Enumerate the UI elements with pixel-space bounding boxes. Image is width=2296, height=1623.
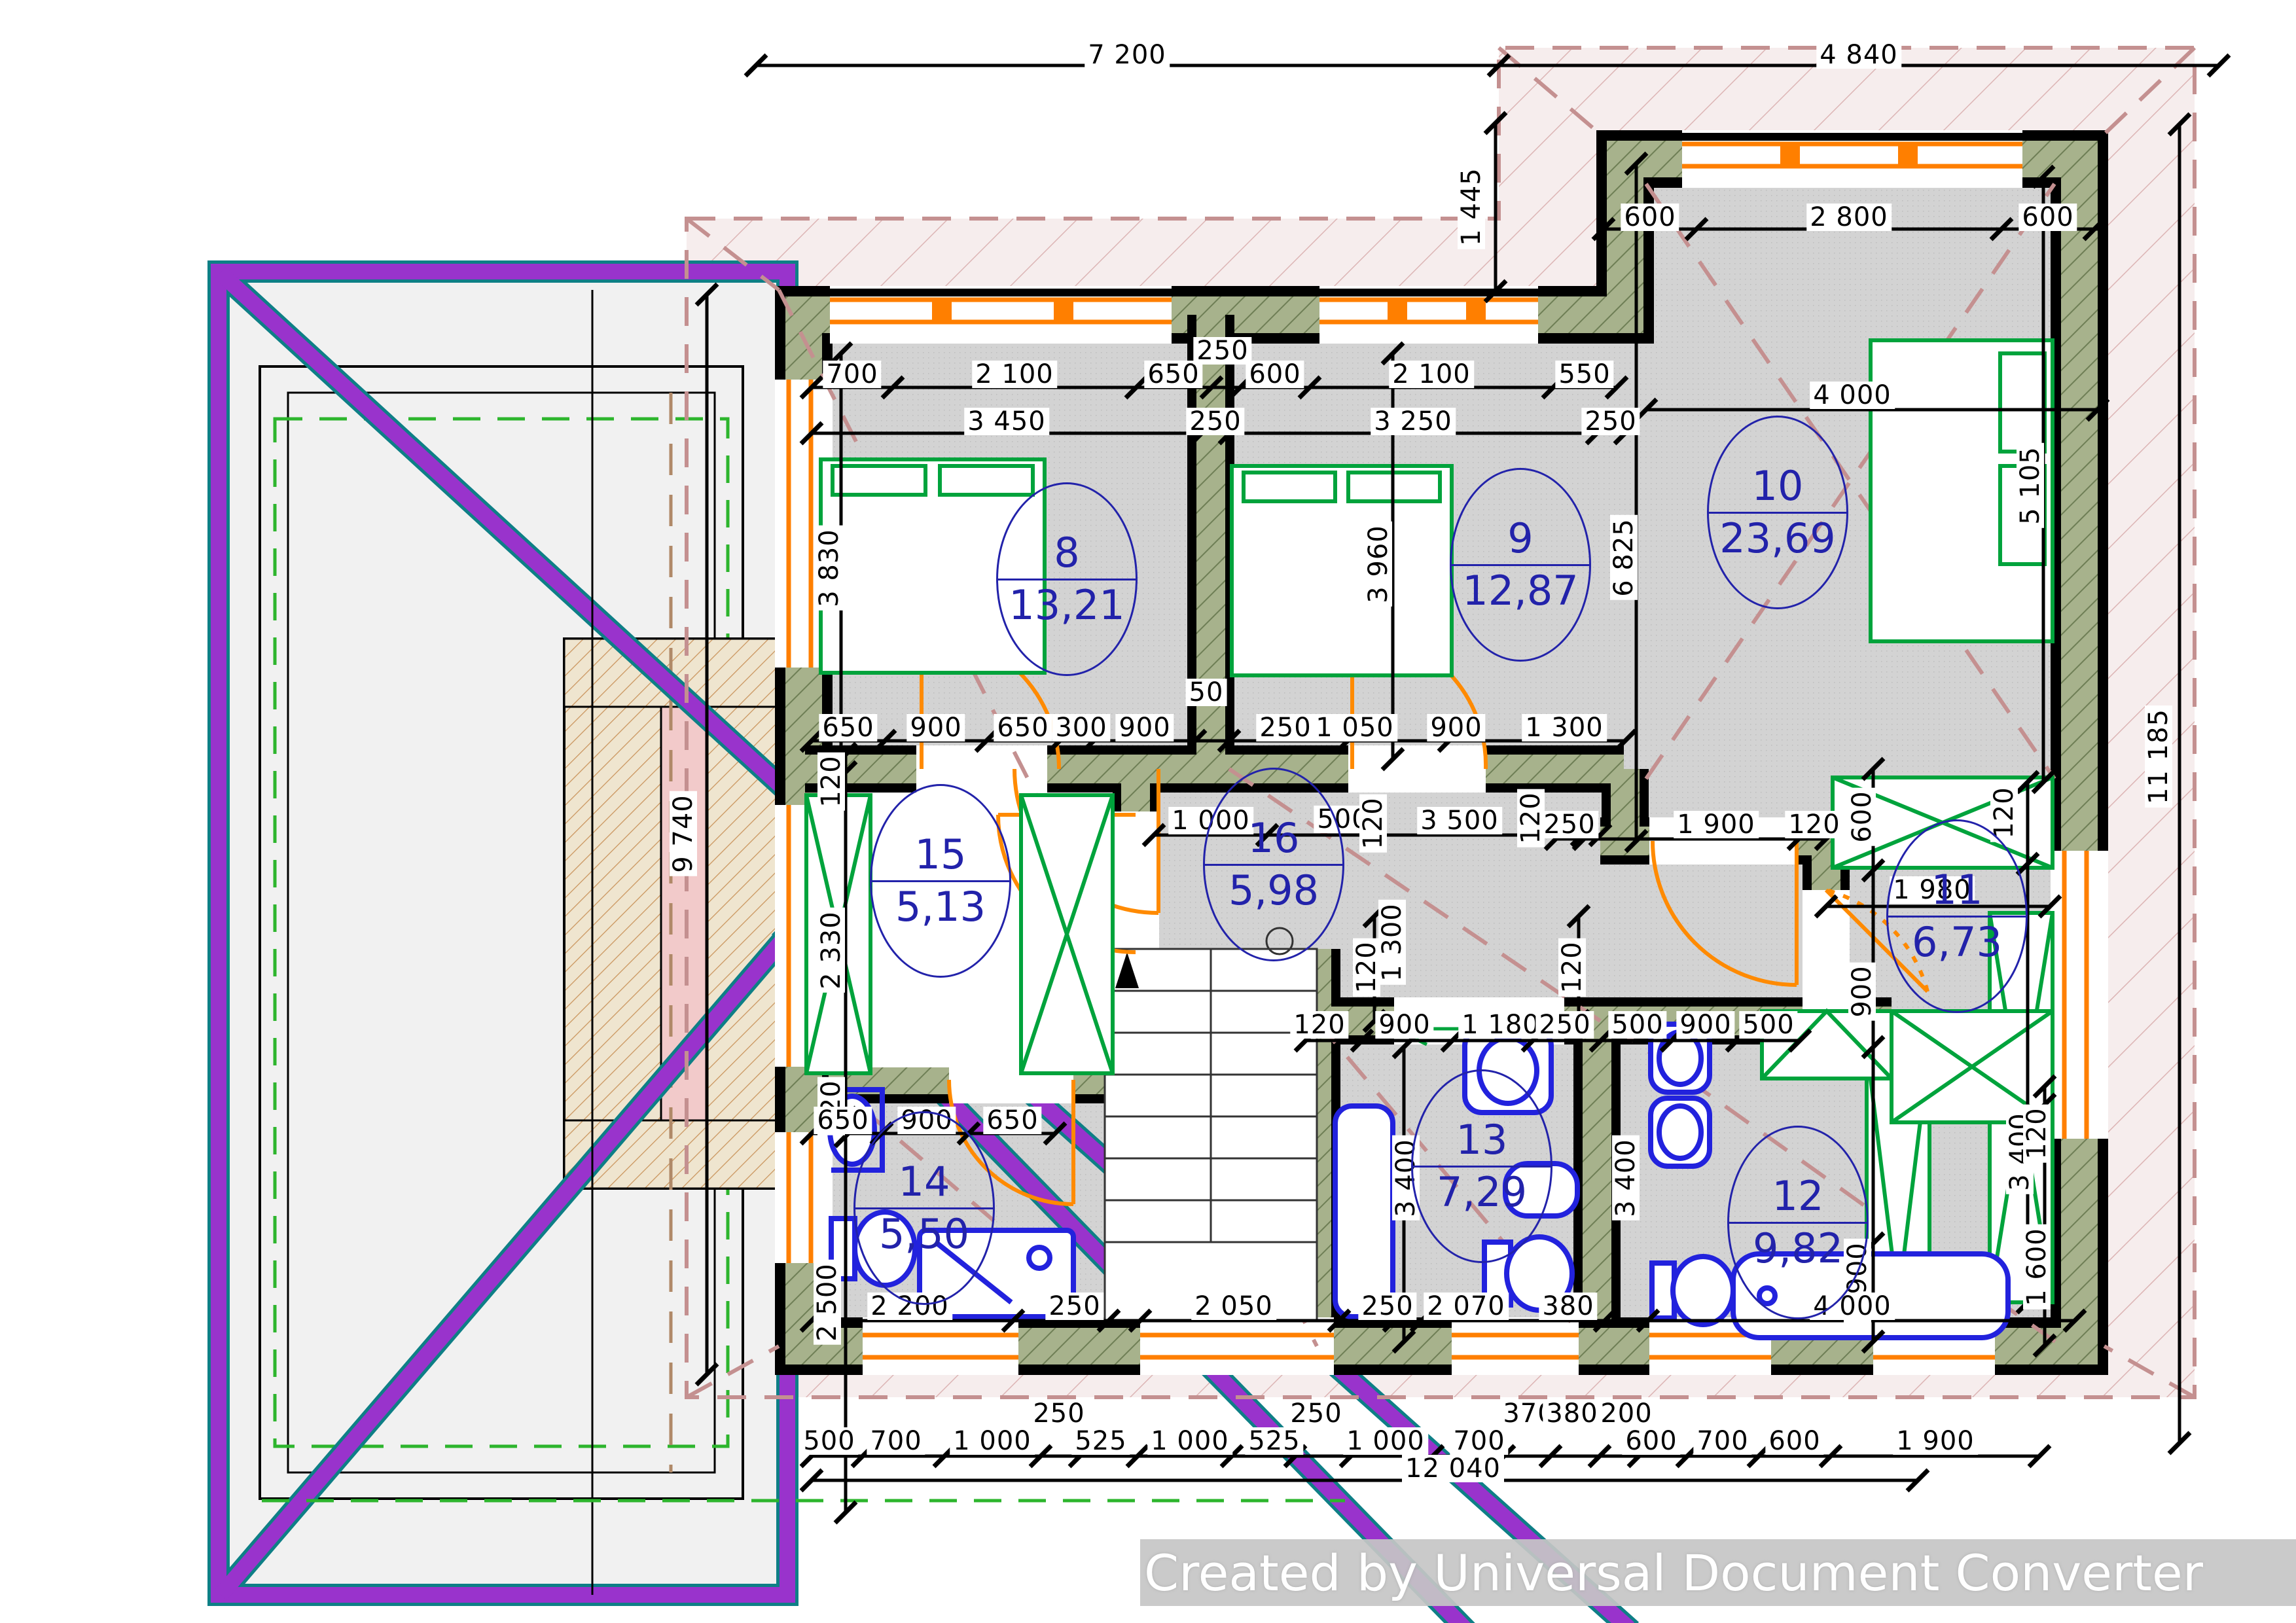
dim-label: 250 — [1287, 1400, 1345, 1427]
room-area: 5,50 — [879, 1212, 969, 1257]
watermark-bar: Created by Universal Document Converter — [1140, 1539, 2296, 1606]
dim-label: 380 — [1543, 1400, 1601, 1427]
dim-label: 3 450 — [964, 408, 1049, 435]
room-14-label: 145,50 — [853, 1111, 995, 1305]
room-area: 13,21 — [1009, 583, 1125, 628]
dim-label: 120 — [1353, 938, 1380, 996]
dim-label: 120 — [1359, 794, 1387, 852]
dim-label: 380 — [1539, 1293, 1597, 1320]
room-9-label: 912,87 — [1450, 468, 1591, 662]
dim-label: 250 — [1030, 1400, 1088, 1427]
dim-label: 200 — [1597, 1400, 1655, 1427]
dim-label: 4 000 — [1810, 382, 1895, 409]
dim-label: 600 — [1765, 1427, 1823, 1455]
room-number: 14 — [899, 1160, 950, 1204]
room-area: 23,69 — [1719, 516, 1836, 561]
dim-label: 900 — [1115, 714, 1174, 741]
dim-label: 600 — [1621, 204, 1679, 231]
floor-plan-page: 7 2004 8401 4456002 8006007002 100650250… — [0, 0, 2296, 1623]
dim-label: 12 040 — [1402, 1455, 1504, 1482]
dim-label: 600 — [1622, 1427, 1680, 1455]
dim-label: 3 400 — [1612, 1135, 1640, 1221]
room-8-label: 813,21 — [996, 482, 1138, 676]
dim-label: 1 180 — [1458, 1011, 1543, 1039]
room-area: 5,13 — [895, 885, 986, 929]
dim-label: 900 — [1375, 1011, 1433, 1039]
dim-label: 1 050 — [1312, 714, 1397, 741]
room-16-label: 165,98 — [1203, 768, 1344, 961]
dim-label: 5 105 — [2017, 443, 2044, 528]
room-10-label: 1023,69 — [1707, 416, 1848, 609]
dim-label: 1 900 — [1893, 1427, 1978, 1455]
room-number: 8 — [1054, 531, 1079, 575]
dim-label: 650 — [994, 714, 1052, 741]
dim-label: 600 — [2018, 204, 2077, 231]
dim-label: 650 — [814, 1107, 872, 1134]
dim-label: 3 250 — [1371, 408, 1456, 435]
dim-label: 250 — [1540, 811, 1598, 838]
dim-label: 700 — [1693, 1427, 1751, 1455]
dim-label: 250 — [1045, 1293, 1103, 1320]
room-number: 16 — [1248, 816, 1300, 861]
dim-label: 500 — [800, 1427, 858, 1455]
room-area: 5,98 — [1229, 868, 1319, 913]
dim-label: 250 — [1186, 408, 1244, 435]
dim-label: 1 300 — [1522, 714, 1607, 741]
dim-label: 3 500 — [1417, 807, 1502, 834]
dim-label: 700 — [1450, 1427, 1508, 1455]
dim-label: 900 — [1676, 1011, 1734, 1039]
room-area: 9,82 — [1753, 1226, 1843, 1271]
dim-label: 250 — [1358, 1293, 1416, 1320]
dim-label: 4 840 — [1816, 41, 1901, 69]
room-label-divider — [1413, 1166, 1551, 1168]
dim-label: 1 000 — [950, 1427, 1035, 1455]
dim-label: 2 100 — [972, 361, 1057, 388]
dim-label: 700 — [823, 361, 881, 388]
dim-label: 1 000 — [1147, 1427, 1232, 1455]
room-area: 7,29 — [1437, 1170, 1527, 1215]
room-label-divider — [1729, 1222, 1867, 1224]
dim-label: 1 300 — [1378, 900, 1406, 985]
watermark-text: Created by Universal Document Converter — [1140, 1544, 2203, 1602]
dim-label: 3 830 — [816, 526, 843, 611]
room-label-divider — [1888, 916, 2026, 918]
room-area: 12,87 — [1462, 569, 1579, 613]
room-12-label: 129,82 — [1727, 1126, 1869, 1319]
dim-label: 300 — [1052, 714, 1110, 741]
room-area: 6,73 — [1912, 920, 2002, 965]
dim-label: 2 050 — [1191, 1293, 1276, 1320]
room-number: 15 — [915, 832, 967, 877]
dim-label: 250 — [1535, 1011, 1594, 1039]
dim-label: 525 — [1071, 1427, 1130, 1455]
dim-label: 120 — [1990, 783, 2018, 842]
dim-label: 1 445 — [1458, 164, 1485, 249]
dim-label: 9 740 — [670, 791, 697, 876]
room-number: 11 — [1931, 868, 1983, 912]
room-11-label: 116,73 — [1886, 819, 2028, 1013]
room-label-divider — [1452, 564, 1589, 566]
dim-label: 2 330 — [817, 908, 845, 993]
dim-label: 500 — [1608, 1011, 1666, 1039]
dim-label: 2 500 — [814, 1260, 841, 1345]
dim-label: 120 — [2023, 1104, 2051, 1162]
dim-label: 3 960 — [1365, 522, 1392, 607]
room-label-divider — [855, 1207, 993, 1209]
room-number: 9 — [1507, 516, 1533, 561]
dim-label: 550 — [1555, 361, 1613, 388]
dim-label: 1 000 — [1343, 1427, 1428, 1455]
room-13-label: 137,29 — [1411, 1069, 1552, 1263]
floor-plan-drawing — [0, 0, 2296, 1623]
dim-label: 900 — [906, 714, 965, 741]
dim-label: 900 — [1427, 714, 1485, 741]
room-number: 12 — [1772, 1174, 1824, 1219]
dim-label: 250 — [1581, 408, 1640, 435]
dim-label: 2 070 — [1424, 1293, 1509, 1320]
dim-label: 2 800 — [1806, 204, 1892, 231]
dim-label: 120 — [817, 752, 845, 810]
stairs — [1105, 928, 1317, 1321]
room-number: 10 — [1752, 464, 1804, 508]
room-15-label: 155,13 — [870, 784, 1011, 978]
dim-label: 120 — [1290, 1011, 1348, 1039]
dim-label: 120 — [1785, 811, 1843, 838]
room-label-divider — [872, 880, 1009, 882]
dim-label: 650 — [819, 714, 877, 741]
dim-label: 600 — [1848, 787, 1876, 846]
room-label-divider — [998, 579, 1136, 580]
dim-label: 11 185 — [2145, 705, 2172, 808]
dim-label: 50 — [1186, 679, 1227, 706]
dim-label: 650 — [1144, 361, 1202, 388]
dim-label: 525 — [1245, 1427, 1303, 1455]
dim-label: 500 — [1739, 1011, 1797, 1039]
dim-label: 700 — [867, 1427, 925, 1455]
dim-label: 1 600 — [2023, 1224, 2051, 1310]
dim-label: 2 100 — [1389, 361, 1474, 388]
dim-label: 250 — [1256, 714, 1314, 741]
room-number: 13 — [1456, 1118, 1508, 1162]
dim-label: 1 900 — [1674, 811, 1759, 838]
dim-label: 250 — [1193, 337, 1251, 365]
dim-label: 120 — [1558, 938, 1586, 996]
dim-label: 650 — [983, 1107, 1041, 1134]
dim-label: 600 — [1246, 361, 1304, 388]
dim-label: 7 200 — [1085, 41, 1170, 69]
dim-label: 900 — [1848, 962, 1876, 1020]
dim-label: 6 825 — [1610, 515, 1638, 600]
room-label-divider — [1709, 512, 1846, 514]
room-label-divider — [1205, 864, 1342, 866]
